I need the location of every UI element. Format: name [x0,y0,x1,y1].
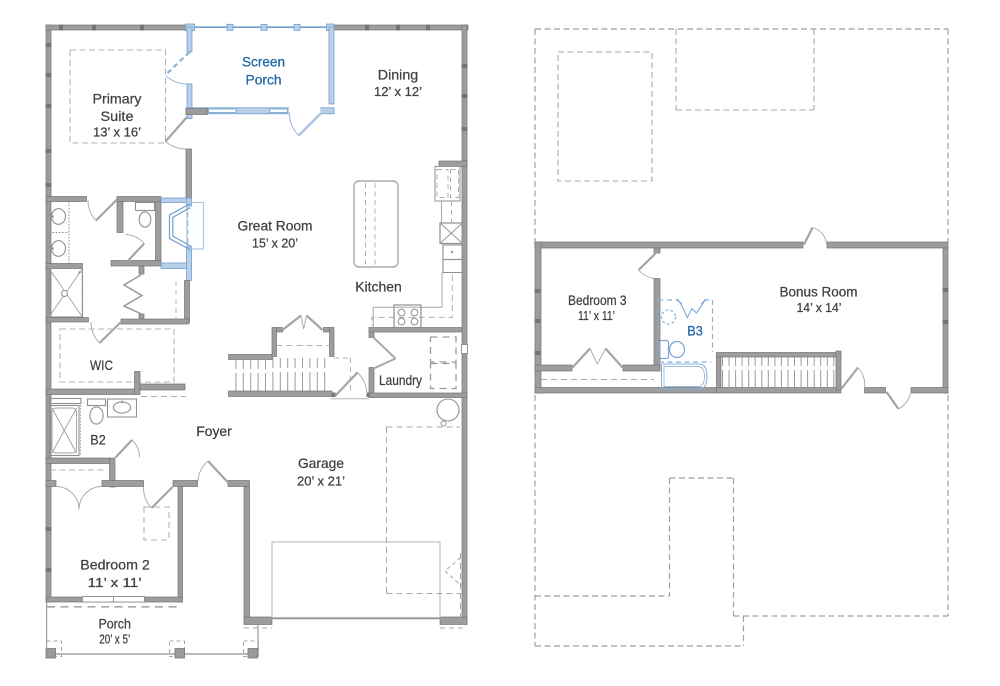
svg-text:Dining: Dining [378,67,419,83]
svg-text:Suite: Suite [101,108,134,124]
svg-text:15’ x 20’: 15’ x 20’ [252,237,298,251]
svg-text:Primary: Primary [93,91,142,107]
svg-text:Laundry: Laundry [379,372,422,388]
svg-text:Bedroom 3: Bedroom 3 [568,292,627,308]
svg-text:20’ x 5’: 20’ x 5’ [99,632,130,646]
svg-text:Garage: Garage [298,455,344,471]
svg-text:Kitchen: Kitchen [355,279,402,295]
svg-text:Great Room: Great Room [238,218,313,234]
svg-text:Screen: Screen [242,53,285,69]
svg-text:14’ x 14’: 14’ x 14’ [797,301,842,315]
svg-text:12’ x 12’: 12’ x 12’ [374,85,422,99]
svg-text:B3: B3 [687,323,703,339]
svg-text:Porch: Porch [246,72,282,88]
svg-text:13’ x 16’: 13’ x 16’ [93,125,141,139]
svg-text:Bonus Room: Bonus Room [780,283,858,299]
svg-text:Foyer: Foyer [196,423,232,439]
svg-text:20’ x 21’: 20’ x 21’ [297,475,345,489]
svg-text:11’ x 11’: 11’ x 11’ [88,576,142,590]
svg-text:WIC: WIC [90,357,113,373]
svg-text:Bedroom 2: Bedroom 2 [80,557,150,573]
svg-text:11’ x 11’: 11’ x 11’ [578,309,615,323]
svg-text:Porch: Porch [98,616,131,632]
svg-text:B2: B2 [90,431,106,447]
